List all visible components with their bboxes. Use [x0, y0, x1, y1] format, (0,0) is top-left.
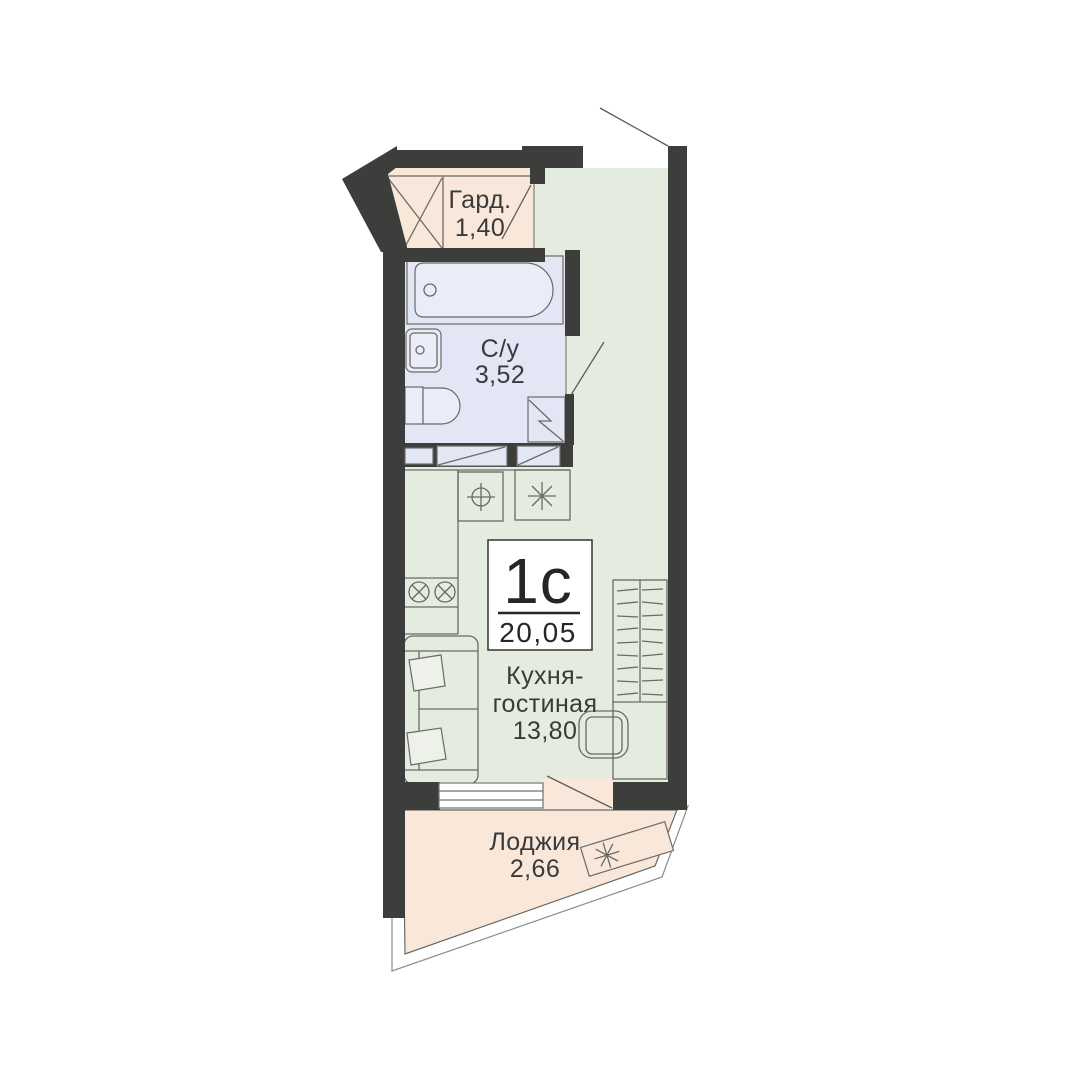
wall-top — [395, 146, 583, 168]
kitchen-living-label-line2: гостиная — [493, 690, 598, 718]
pillow-icon — [407, 728, 446, 765]
wardrobe-area: 1,40 — [455, 214, 505, 242]
wall-bathroom-jamb — [565, 394, 574, 445]
unit-total-area: 20,05 — [499, 617, 577, 648]
bathroom-area: 3,52 — [475, 361, 525, 389]
kitchen-living-label-line1: Кухня- — [506, 662, 584, 690]
kitchen-living-area: 13,80 — [513, 717, 578, 745]
loggia-doorway-floor — [543, 778, 613, 810]
wall-ducts — [405, 446, 560, 466]
pillow-icon — [409, 655, 445, 691]
wall-wardrobe-right — [530, 164, 545, 184]
floor-plan: 1с 20,05 Гард. 1,40 С/у 3,52 Кухня- гост… — [0, 0, 1080, 1080]
entry-door-swing — [600, 108, 668, 146]
bathtub-icon — [407, 256, 563, 324]
toilet-icon — [405, 387, 460, 424]
unit-type: 1с — [503, 545, 573, 617]
wardrobe-label: Гард. — [449, 186, 512, 214]
bathroom-label: С/у — [481, 335, 520, 363]
washbasin-icon — [406, 329, 441, 372]
wall-bottom-left — [383, 782, 440, 810]
wall-left — [383, 248, 405, 918]
wall-bottom-right — [613, 782, 687, 810]
duct-icon — [405, 448, 433, 464]
wall-wardrobe-bathroom — [395, 248, 545, 262]
wall-right — [668, 146, 687, 810]
wall-bathroom-right — [565, 250, 580, 336]
unit-badge: 1с 20,05 — [488, 540, 592, 650]
floor-plan-canvas: 1с 20,05 Гард. 1,40 С/у 3,52 Кухня- гост… — [0, 0, 1080, 1080]
loggia-label: Лоджия — [490, 828, 581, 856]
loggia-area: 2,66 — [510, 855, 560, 883]
bathroom-door-leaf-icon — [528, 397, 565, 442]
window — [439, 783, 543, 808]
